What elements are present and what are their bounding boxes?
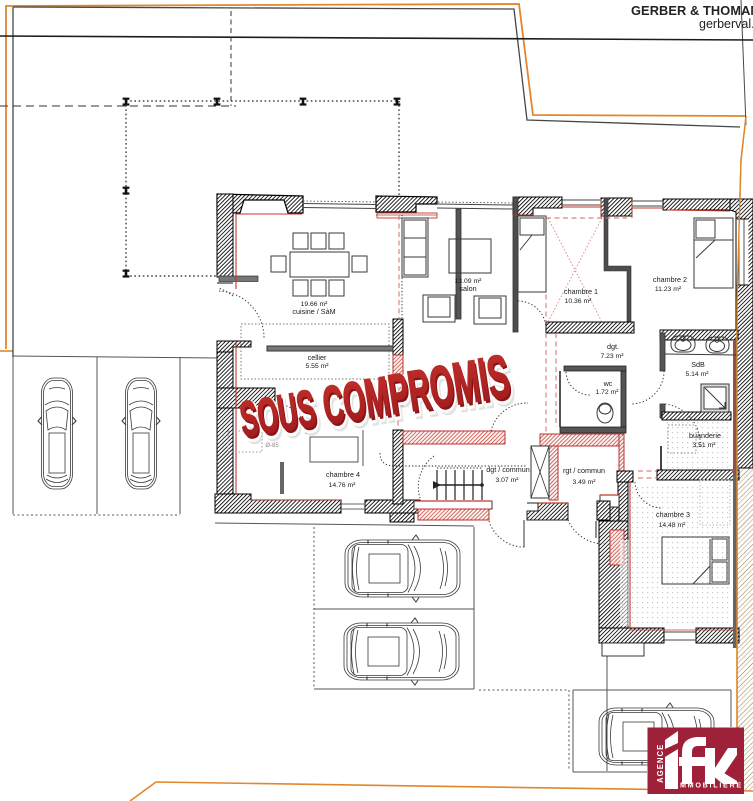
svg-text:AGENCE: AGENCE [656,744,665,783]
svg-text:10.36 m²: 10.36 m² [565,298,593,305]
svg-text:SdB: SdB [691,360,705,369]
svg-text:MMOBILIERE: MMOBILIERE [680,781,743,790]
svg-text:5.55 m²: 5.55 m² [305,363,329,370]
svg-text:14.76 m²: 14.76 m² [329,482,357,489]
svg-text:chambre 1: chambre 1 [564,287,598,296]
svg-text:gerberval..: gerberval.. [699,17,753,31]
svg-text:3.49 m²: 3.49 m² [572,479,596,486]
svg-text:cuisine / SàM: cuisine / SàM [292,307,335,316]
svg-text:GERBER & THOMANN: GERBER & THOMANN [631,3,753,18]
svg-text:7.23 m²: 7.23 m² [600,353,624,360]
svg-text:1.72 m²: 1.72 m² [595,389,619,396]
svg-text:salon: salon [459,284,476,293]
svg-text:cellier: cellier [308,353,327,362]
svg-text:11.23 m²: 11.23 m² [655,286,682,293]
svg-text:wc: wc [603,379,613,388]
svg-text:14.48 m²: 14.48 m² [659,522,687,529]
svg-text:dgt / commun: dgt / commun [486,465,530,474]
svg-text:3.51 m²: 3.51 m² [692,442,716,449]
svg-text:rgt / commun: rgt / commun [563,466,605,475]
svg-text:chambre 4: chambre 4 [326,470,360,479]
svg-text:chambre 2: chambre 2 [653,275,687,284]
svg-text:chambre 3: chambre 3 [656,510,690,519]
svg-text:dgt.: dgt. [607,342,619,351]
svg-text:3.07 m²: 3.07 m² [495,477,519,484]
svg-text:buanderie: buanderie [689,431,721,440]
svg-text:5.14 m²: 5.14 m² [685,371,709,378]
